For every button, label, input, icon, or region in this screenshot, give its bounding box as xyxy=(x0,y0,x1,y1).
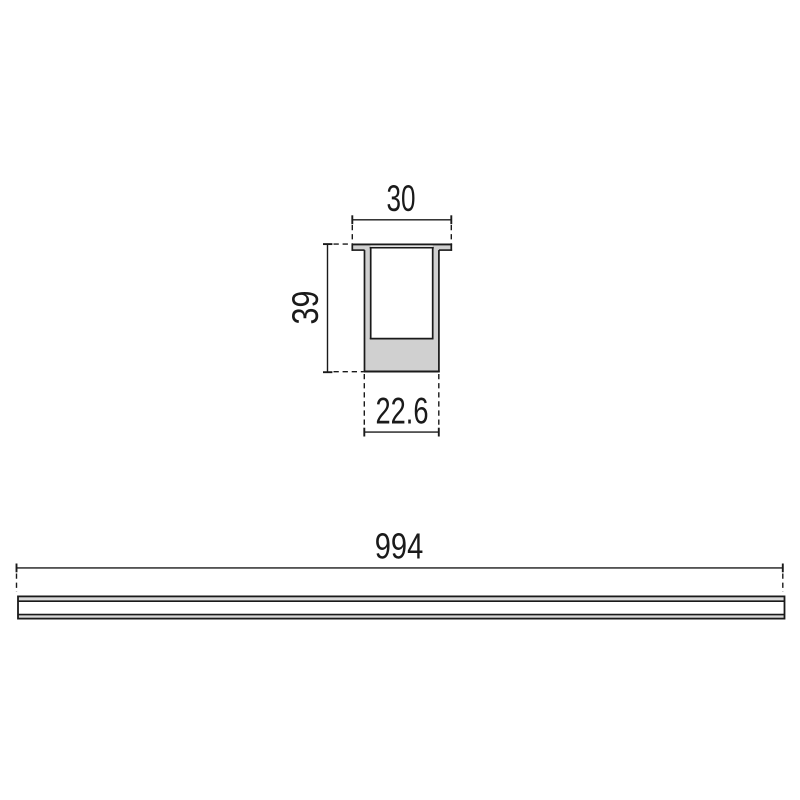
svg-text:39: 39 xyxy=(285,291,326,325)
svg-text:22.6: 22.6 xyxy=(376,390,429,431)
svg-text:994: 994 xyxy=(375,526,424,567)
svg-text:30: 30 xyxy=(387,178,416,219)
